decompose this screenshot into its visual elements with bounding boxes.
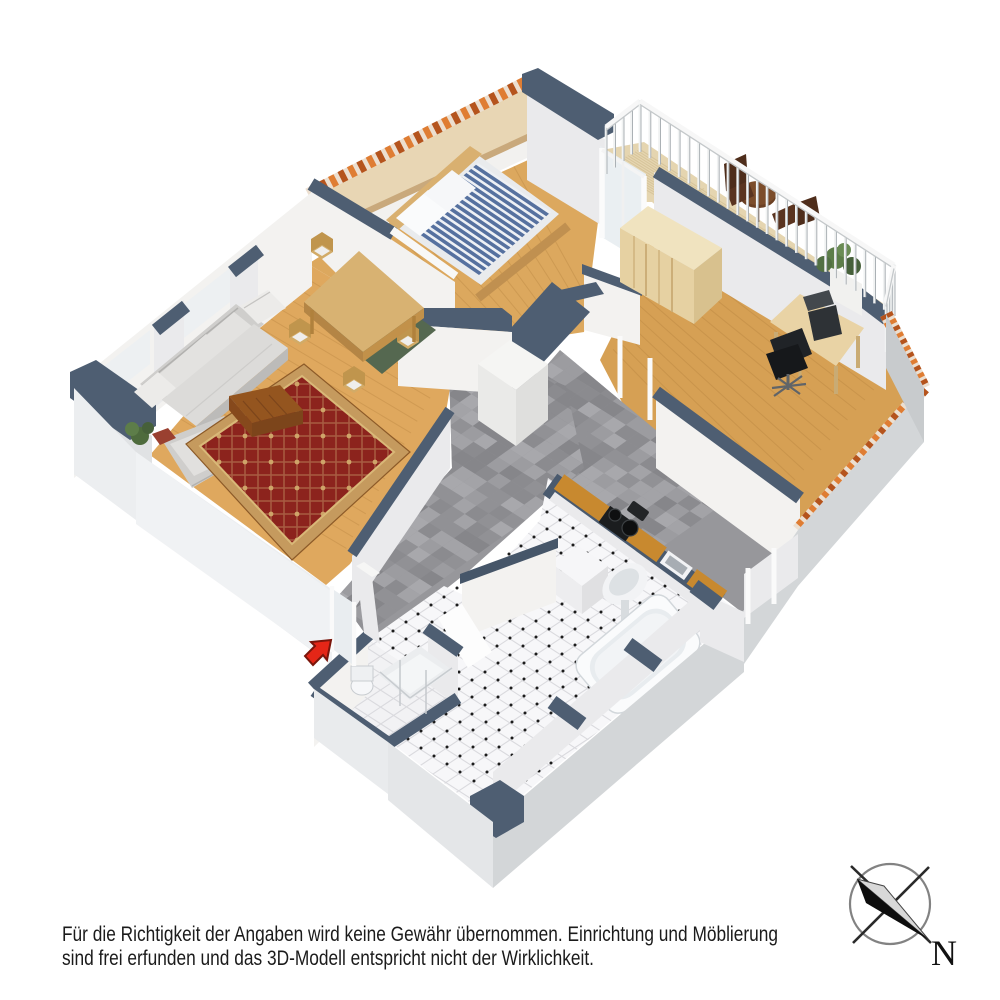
svg-text:sind frei erfunden und das 3D-: sind frei erfunden und das 3D-Modell ent… [62, 947, 594, 970]
svg-text:Für die Richtigkeit der Angabe: Für die Richtigkeit der Angaben wird kei… [62, 923, 778, 946]
svg-text:N: N [931, 933, 957, 973]
